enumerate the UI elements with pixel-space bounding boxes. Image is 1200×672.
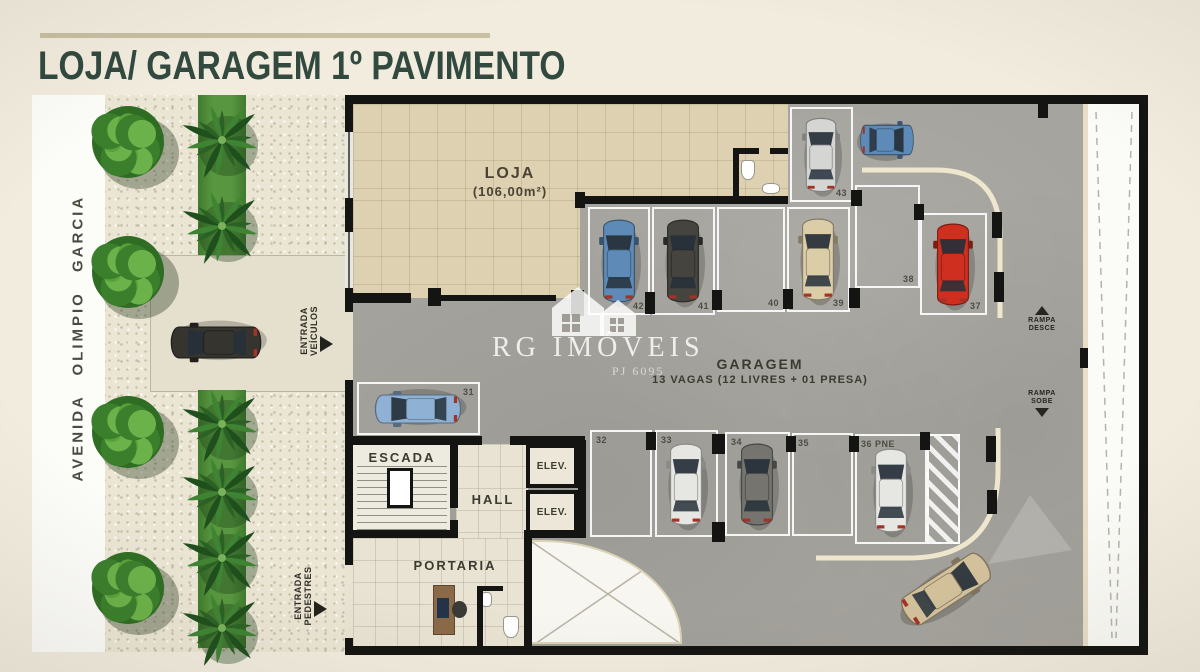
sink-icon	[762, 183, 780, 194]
vehicle-entrance-line1: ENTRADA	[299, 301, 309, 361]
green-median-strip	[198, 95, 246, 255]
car-steelblue	[597, 213, 641, 309]
elevator-2: ELEV.	[526, 490, 578, 534]
wall-segment	[733, 148, 739, 198]
wall-segment	[345, 436, 482, 445]
car-gray	[735, 437, 779, 532]
wall-segment	[450, 520, 458, 538]
wall-segment	[739, 148, 759, 154]
curb-joint-bar	[1080, 348, 1088, 368]
car-red	[931, 217, 975, 312]
ramp-down-label: RAMPA DESCE	[1018, 306, 1066, 333]
wall-segment	[510, 436, 585, 445]
wall-segment	[345, 95, 353, 132]
car-lightblue	[368, 389, 468, 429]
stair-core	[387, 468, 413, 508]
curb-joint-bar	[849, 436, 859, 452]
curb-joint-bar	[712, 522, 725, 542]
curb-joint-bar	[987, 490, 997, 514]
curb-joint-bar	[994, 272, 1004, 302]
loja-floor	[353, 200, 580, 298]
toilet-icon	[741, 160, 755, 180]
ramp-down-arrow-icon	[1035, 408, 1049, 417]
wall-segment	[345, 293, 411, 303]
ramp-curb	[1083, 104, 1088, 646]
storefront-glass-line	[348, 132, 350, 198]
pedestrian-entrance-line2: PEDESTRES	[303, 566, 313, 626]
desk-monitor	[437, 598, 449, 618]
pedestrian-threshold	[345, 565, 353, 638]
car-white	[869, 442, 913, 539]
parking-spot-40: 40	[717, 207, 785, 312]
curb-joint-bar	[786, 436, 796, 452]
wall-segment	[524, 530, 586, 538]
ramp-down-line1: RAMPA	[1018, 317, 1066, 325]
street-name-label: AVENIDA OLIMPIO GARCIA	[70, 252, 87, 482]
ramp-up-label: RAMPA SOBE	[1018, 390, 1066, 417]
elevator-1: ELEV.	[526, 444, 578, 488]
title-rule	[40, 33, 490, 38]
page-title: LOJA/ GARAGEM 1º PAVIMENTO	[38, 44, 566, 89]
car-charcoal	[661, 213, 705, 309]
curb-joint-bar	[986, 436, 996, 462]
wall-segment	[583, 196, 788, 204]
parking-spot-35: 35	[792, 433, 853, 536]
ramp-up-arrow-icon	[1035, 306, 1049, 315]
wall-segment	[571, 290, 584, 316]
green-median-strip	[198, 390, 246, 648]
loja-area-label: (106,00m²)	[435, 184, 585, 199]
wall-segment	[477, 586, 503, 591]
curb-joint-bar	[992, 212, 1002, 238]
spot-number: 40	[768, 298, 779, 308]
wall-segment	[345, 95, 1148, 104]
watermark-registry: PJ 6095	[612, 364, 664, 379]
elevator-label: ELEV.	[537, 461, 567, 472]
pedestrian-entrance-line1: ENTRADA	[293, 566, 303, 626]
ramp-down-line2: DESCE	[1018, 325, 1066, 333]
toilet-icon	[503, 616, 519, 638]
car-white	[664, 437, 708, 532]
spot-number: 38	[903, 274, 914, 284]
desk-chair	[452, 601, 467, 618]
ramp-up-line1: RAMPA	[1018, 390, 1066, 398]
curb-joint-bar	[783, 289, 793, 309]
wall-segment	[578, 440, 586, 536]
vehicle-entrance-line2: VEÍCULOS	[309, 301, 319, 361]
wall-segment	[440, 295, 556, 301]
wall-segment	[450, 436, 458, 508]
curb-joint-bar	[849, 288, 860, 308]
curb-joint-bar	[914, 204, 924, 220]
stairs-label: ESCADA	[360, 450, 444, 465]
car-black	[164, 320, 269, 364]
elevator-label: ELEV.	[537, 507, 567, 518]
wall-segment	[352, 530, 451, 538]
ramp-corridor	[1088, 104, 1139, 646]
storefront-glass-line	[348, 232, 350, 288]
spot-number: 35	[798, 438, 809, 448]
curb-joint-bar	[712, 434, 725, 454]
wall-segment	[1038, 104, 1048, 118]
floor-plan-canvas: LOJA/ GARAGEM 1º PAVIMENTO AVENIDA OLIMP…	[0, 0, 1200, 672]
portaria-label: PORTARIA	[385, 558, 525, 573]
street	[32, 95, 105, 652]
watermark-brand: RG IMÓVEIS	[492, 332, 705, 364]
car-cream	[796, 212, 840, 307]
ramp-up-line2: SOBE	[1018, 398, 1066, 406]
pedestrian-entrance-label: ENTRADA PEDESTRES	[293, 566, 313, 626]
wall-segment	[345, 198, 353, 232]
curb-joint-bar	[645, 292, 655, 314]
pne-hatch-area	[927, 434, 960, 544]
wall-segment	[770, 148, 788, 154]
pedestrian-entrance-arrow-icon	[314, 601, 327, 617]
curb-joint-bar	[851, 190, 862, 206]
curb-joint-bar	[920, 432, 930, 450]
wall-segment	[1139, 95, 1148, 655]
vehicle-entrance-label: ENTRADA VEÍCULOS	[299, 301, 319, 361]
car-steelblue	[856, 119, 918, 161]
car-silver	[800, 112, 842, 198]
vehicle-entrance-arrow-icon	[320, 336, 333, 352]
wall-segment	[477, 586, 483, 646]
spot-number: 32	[596, 435, 607, 445]
wall-segment	[345, 646, 1148, 655]
curb-joint-bar	[712, 290, 722, 310]
loja-label: LOJA	[445, 165, 575, 183]
wall-segment	[524, 538, 532, 646]
wall-segment	[345, 638, 353, 655]
curb-joint-bar	[646, 432, 656, 450]
hall-label: HALL	[462, 492, 524, 507]
parking-spot-38: 38	[855, 185, 920, 288]
parking-spot-32: 32	[590, 430, 652, 537]
